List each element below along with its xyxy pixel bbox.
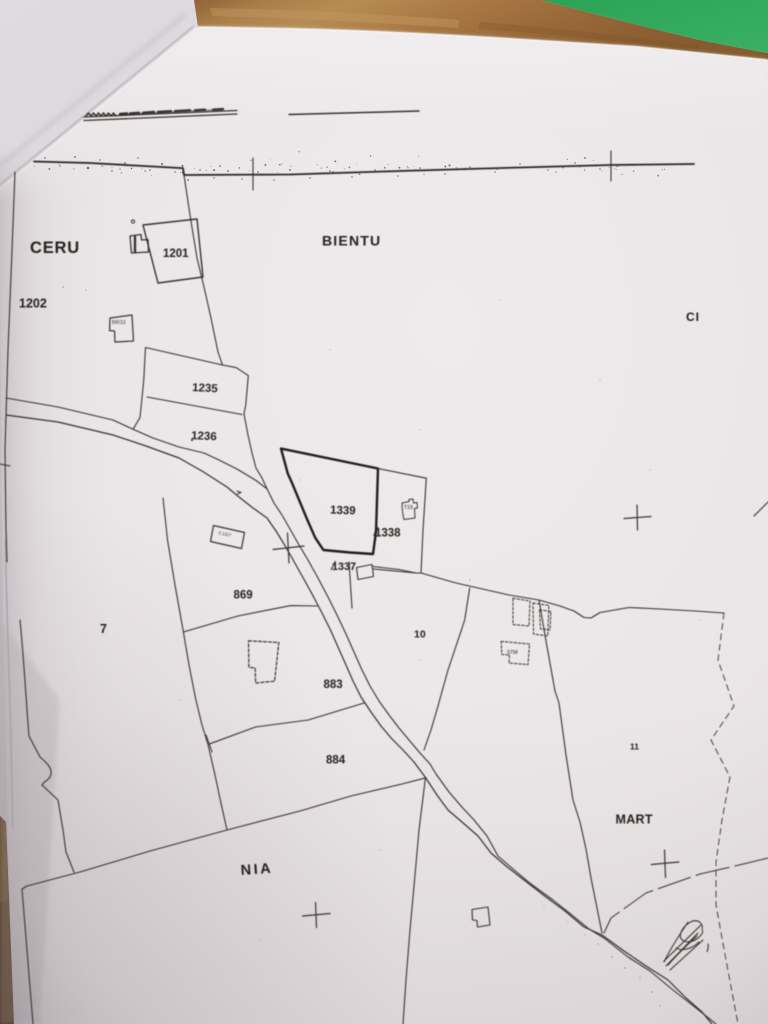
svg-text:BIENTU: BIENTU [322, 233, 381, 249]
svg-text:10: 10 [414, 629, 426, 641]
svg-text:STM: STM [507, 650, 518, 656]
svg-text:1202: 1202 [19, 297, 47, 311]
svg-text:1201: 1201 [163, 248, 189, 260]
svg-text:11: 11 [630, 742, 639, 752]
svg-text:7: 7 [100, 622, 107, 636]
svg-text:NIA: NIA [240, 861, 274, 879]
svg-text:883: 883 [324, 679, 343, 691]
svg-text:1236: 1236 [191, 430, 217, 443]
svg-text:CI: CI [686, 310, 700, 324]
svg-text:1235: 1235 [192, 382, 219, 395]
svg-text:1339: 1339 [330, 505, 356, 518]
svg-text:MART: MART [616, 813, 653, 827]
svg-text:T19: T19 [404, 505, 413, 511]
svg-text:CERU: CERU [30, 239, 80, 257]
svg-text:1337: 1337 [332, 561, 356, 573]
svg-text:1338: 1338 [375, 528, 401, 540]
svg-text:869: 869 [234, 590, 253, 602]
svg-text:BR32: BR32 [112, 320, 126, 326]
svg-text:884: 884 [326, 755, 346, 767]
